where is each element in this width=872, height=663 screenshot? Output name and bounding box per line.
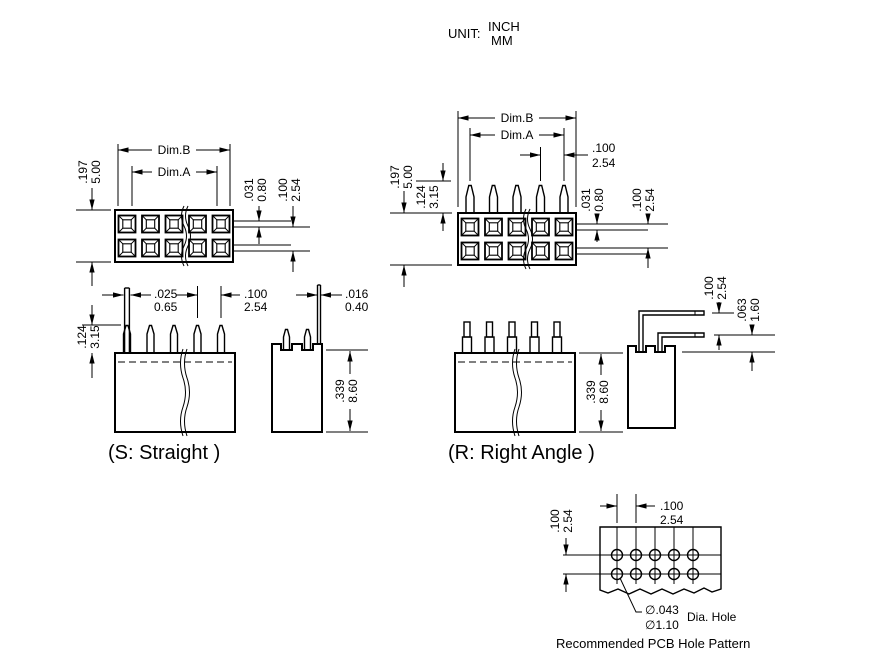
dim-100-inch: .100 [548,509,562,533]
side-view-right-angle: .339 8.60 (R: Right Angle ) [448,322,623,464]
dim-100-mm: 2.54 [289,178,303,202]
connector-body [115,353,235,432]
pin [490,186,498,214]
dim-124-mm: 3.15 [88,325,102,349]
dim-025-mm: 0.65 [154,300,178,314]
dim-339-inch: .339 [333,379,347,403]
dim-100-inch: .100 [244,287,268,301]
dim-025-inch: .025 [154,287,178,301]
leader-line [620,578,642,612]
dim-124-inch: .124 [75,325,89,349]
dim-031-mm: 0.80 [592,188,606,212]
technical-drawing-page: UNIT: INCH MM Dim.B Dim.A .197 5.00 .031… [0,0,872,658]
dim-031-inch: .031 [242,178,256,202]
dim-124-mm: 3.15 [427,185,441,209]
dim-031-mm: 0.80 [255,178,269,202]
dim-100-inch: .100 [592,141,616,155]
dim-hole-mm: ∅1.10 [645,618,679,632]
dim-b-label: Dim.B [158,143,191,157]
connector-body [455,353,575,432]
dim-a-label: Dim.A [158,165,191,179]
unit-label: UNIT: [448,26,481,41]
dim-339-inch: .339 [584,380,598,404]
dim-100-mm: 2.54 [244,300,268,314]
pin [218,326,225,354]
unit-mm: MM [491,33,513,48]
pin [466,186,474,214]
dim-016-inch: .016 [345,287,369,301]
caption-right-angle: (R: Right Angle ) [448,442,595,464]
dim-100-mm: 2.54 [643,188,657,212]
pin [537,186,545,214]
dim-124-inch: .124 [414,185,428,209]
connector-body [272,344,322,432]
dim-197-inch: .197 [388,165,402,189]
dim-339-mm: 8.60 [597,380,611,404]
dim-a-label: Dim.A [501,128,534,142]
pin [305,330,311,351]
dim-100-mm: 2.54 [592,156,616,170]
pcb-pattern-caption: Recommended PCB Hole Pattern [556,636,750,651]
dim-100-mm: 2.54 [715,276,729,300]
pin [284,330,290,351]
pin [147,326,154,354]
dim-100-inch: .100 [630,188,644,212]
dim-100-inch: .100 [702,276,716,300]
unit-note: UNIT: INCH MM [448,19,520,48]
end-view-right-angle: .100 2.54 .063 1.60 [628,276,775,428]
dim-031-inch: .031 [579,188,593,212]
top-view-straight: Dim.B Dim.A .197 5.00 .031 0.80 .100 2.5… [76,143,310,286]
side-view-straight: .025 0.65 .100 2.54 .124 3.15 (S: Straig… [75,286,268,464]
dim-197-mm: 5.00 [89,160,103,184]
pin [513,186,521,214]
dim-063-inch: .063 [735,298,749,322]
dim-197-mm: 5.00 [401,165,415,189]
dim-016-mm: 0.40 [345,300,369,314]
pcb-hole-pattern: .100 2.54 .100 2.54 ∅.043 ∅1.10 Dia. Hol… [548,494,750,651]
end-view-straight: .016 0.40 .339 8.60 [272,285,369,432]
dim-b-label: Dim.B [501,111,534,125]
dim-100-inch: .100 [660,499,684,513]
caption-straight: (S: Straight ) [108,442,220,464]
dia-hole-label: Dia. Hole [687,610,737,624]
dim-100-inch: .100 [276,178,290,202]
top-view-right-angle: Dim.B Dim.A .100 2.54 .197 5.00 .124 3.1… [388,111,668,287]
connector-body [628,346,675,428]
dim-100-mm: 2.54 [660,513,684,527]
dim-100-mm: 2.54 [561,509,575,533]
pin [194,326,201,354]
unit-inch: INCH [488,19,520,34]
dim-197-inch: .197 [76,160,90,184]
dim-hole-inch: ∅.043 [645,603,679,617]
pin [171,326,178,354]
dim-339-mm: 8.60 [346,379,360,403]
drawing-canvas: UNIT: INCH MM Dim.B Dim.A .197 5.00 .031… [0,0,872,658]
dim-063-mm: 1.60 [748,298,762,322]
pins [463,322,562,353]
pin [560,186,568,214]
